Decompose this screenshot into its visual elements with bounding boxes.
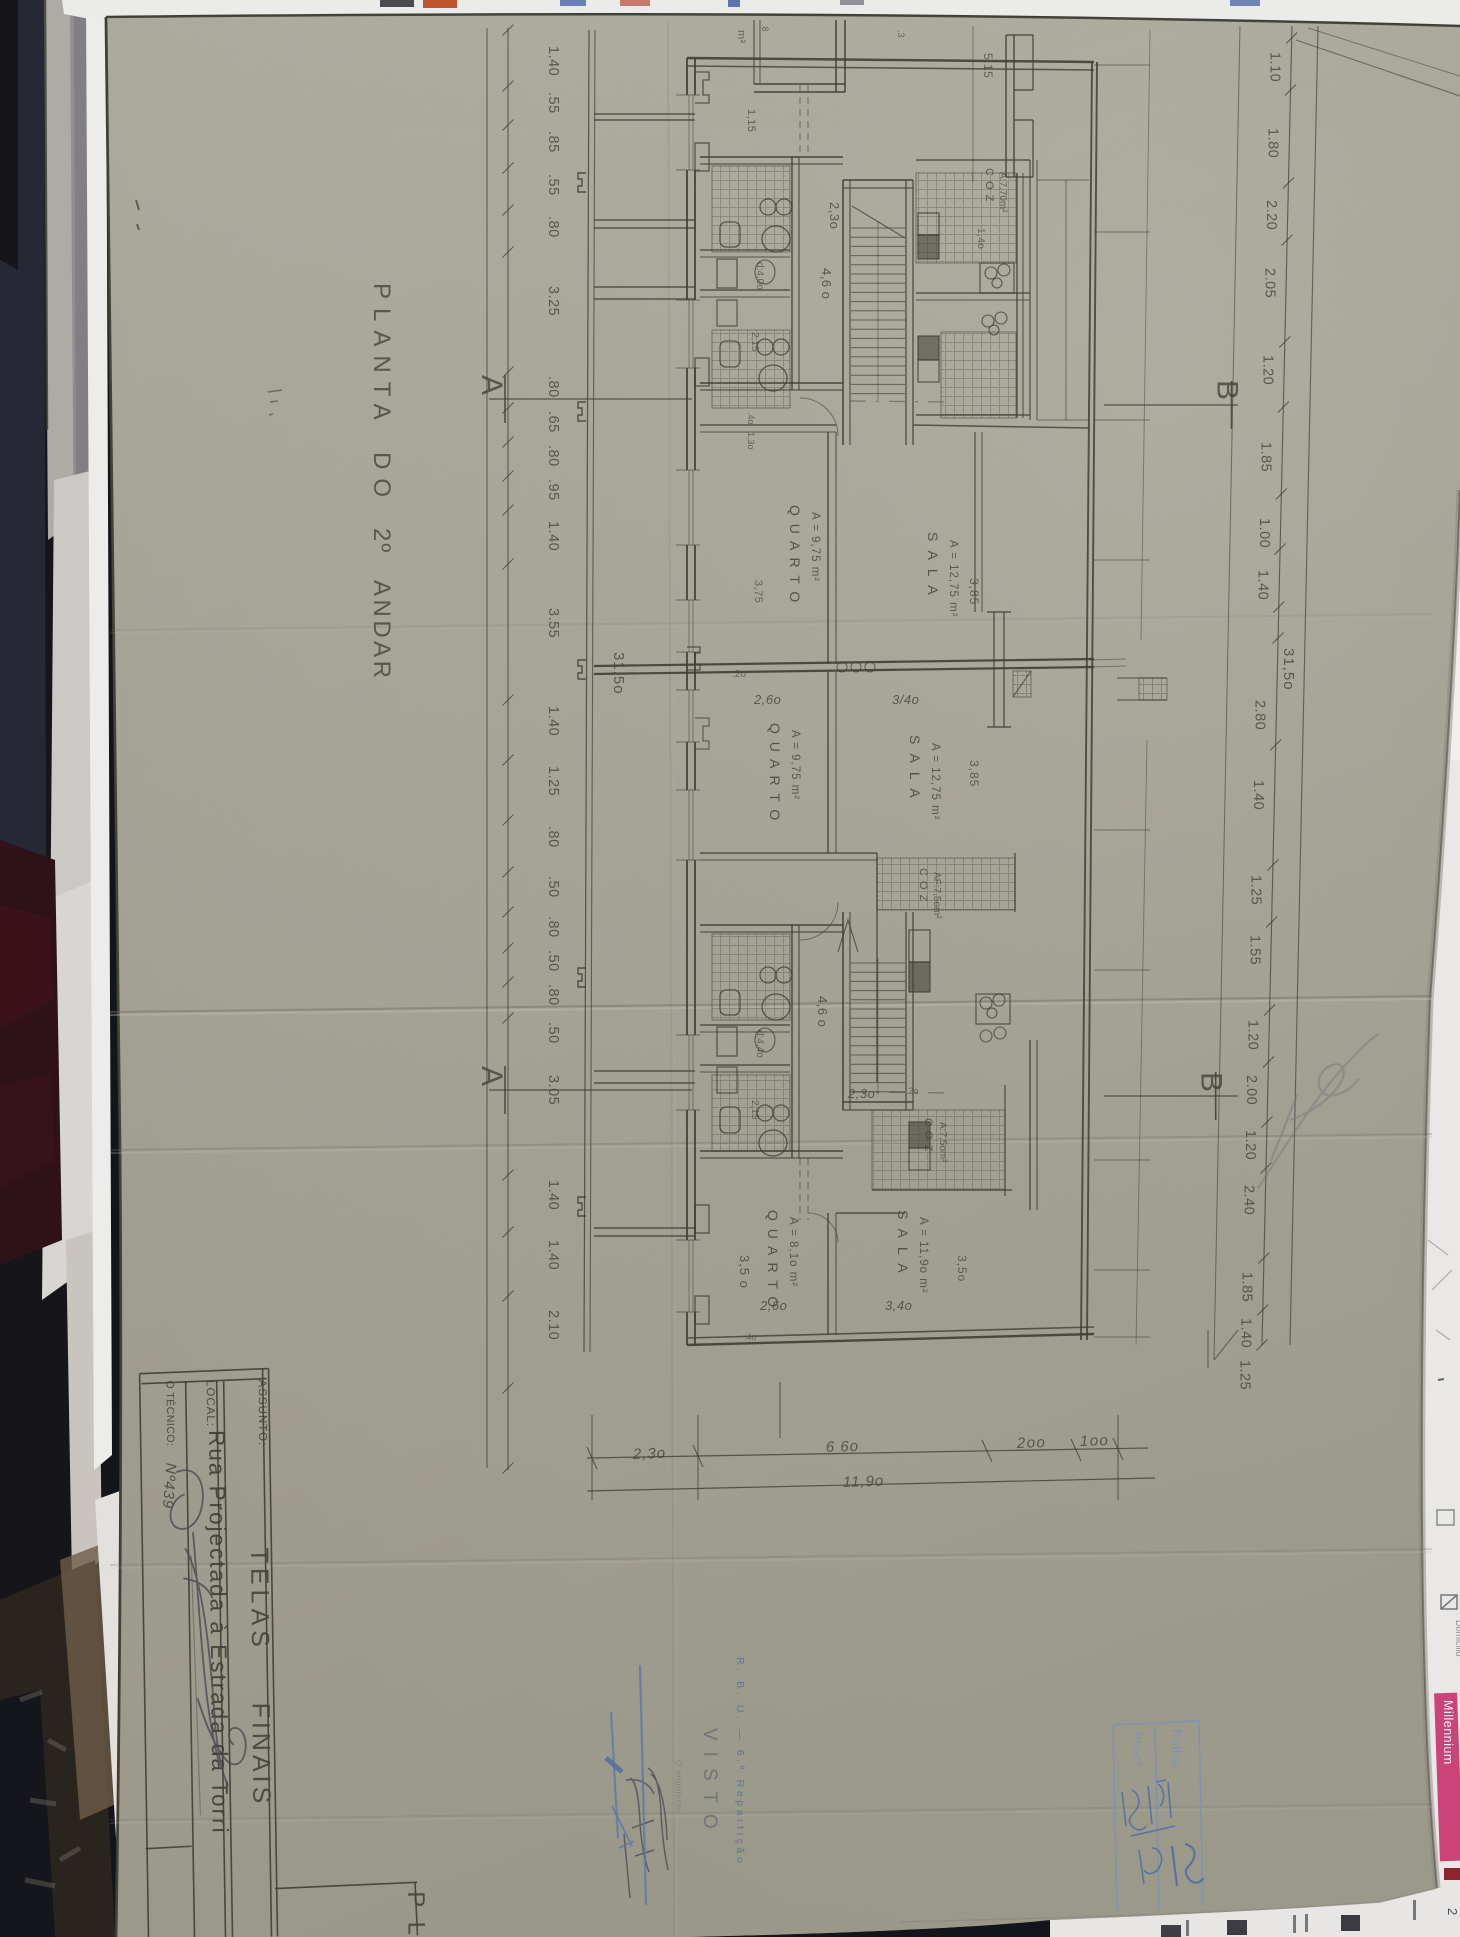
svg-text:A = 8,1o m²: A = 8,1o m²: [787, 1217, 799, 1287]
svg-text:3.05: 3.05: [545, 1075, 561, 1105]
svg-text:2.80: 2.80: [1252, 700, 1268, 730]
svg-text:5,15: 5,15: [981, 53, 995, 78]
svg-text:.65: .65: [545, 411, 561, 433]
svg-text:.55: .55: [545, 92, 561, 114]
svg-text:ASSUNTO:: ASSUNTO:: [256, 1380, 269, 1447]
svg-text:Procº: Procº: [1130, 1731, 1145, 1767]
svg-text:1.40: 1.40: [545, 46, 561, 76]
svg-text:3,5o: 3,5o: [955, 1255, 969, 1282]
svg-text:1.40: 1.40: [545, 1180, 561, 1210]
svg-text:2,15: 2,15: [749, 1100, 760, 1120]
svg-text:4,6 o: 4,6 o: [815, 996, 830, 1027]
svg-text:TELAS: TELAS: [245, 1548, 274, 1652]
svg-text:Domicilio: Domicilio: [1454, 1620, 1460, 1657]
svg-text:VISTO: VISTO: [699, 1728, 720, 1840]
svg-text:2.20: 2.20: [1263, 200, 1279, 230]
svg-text:Folha: Folha: [1169, 1729, 1184, 1767]
svg-text:.4o: .4o: [744, 1332, 757, 1342]
svg-text:6 6o: 6 6o: [826, 1438, 860, 1456]
svg-text:3,75: 3,75: [752, 580, 764, 603]
svg-text:.3: .3: [896, 30, 906, 38]
svg-text:3,85: 3,85: [967, 760, 981, 787]
svg-text:A = 12,75 m²: A = 12,75 m²: [947, 540, 959, 618]
svg-text:A: A: [475, 375, 508, 396]
svg-text:.80: .80: [545, 445, 561, 467]
svg-text:.8: .8: [760, 24, 770, 32]
svg-text:Q U A R T O: Q U A R T O: [767, 723, 783, 822]
svg-text:1.55: 1.55: [1246, 935, 1262, 965]
svg-text:A:7,70m²: A:7,70m²: [997, 172, 1008, 213]
svg-text:B: B: [1195, 1072, 1228, 1093]
svg-text:O arquitecto: O arquitecto: [674, 1760, 684, 1812]
svg-text:1.40: 1.40: [545, 521, 561, 551]
svg-text:1.40: 1.40: [545, 706, 561, 736]
svg-text:.55: .55: [545, 174, 561, 196]
svg-text:C O Z: C O Z: [983, 168, 995, 202]
svg-text:1.80: 1.80: [1265, 128, 1281, 158]
svg-text:3,5 o: 3,5 o: [737, 1255, 752, 1289]
svg-text:PLANTA: PLANTA: [368, 283, 395, 429]
svg-text:d:4,4o: d:4,4o: [754, 1030, 765, 1058]
svg-text:AF:7,5om²: AF:7,5om²: [931, 872, 942, 919]
svg-text:B: B: [1211, 380, 1244, 401]
svg-text:m²: m²: [735, 30, 747, 44]
svg-text:DO: DO: [368, 452, 395, 506]
svg-text:Rua Projectada à Estrada da To: Rua Projectada à Estrada da Torri: [204, 1430, 233, 1835]
svg-text:.80: .80: [545, 984, 561, 1006]
svg-text:2.10: 2.10: [545, 1310, 561, 1340]
svg-text:C O Z: C O Z: [917, 868, 929, 902]
svg-text:Q U A R T O: Q U A R T O: [765, 1210, 781, 1309]
svg-text:1.20: 1.20: [1242, 1130, 1258, 1160]
svg-text:.80: .80: [545, 916, 561, 938]
svg-text:2.00: 2.00: [1243, 1075, 1259, 1105]
svg-text:Q U A R T O: Q U A R T O: [787, 505, 803, 604]
svg-text:1.85: 1.85: [1239, 1272, 1255, 1302]
svg-text:3.55: 3.55: [545, 608, 561, 638]
svg-text:3,85: 3,85: [967, 578, 981, 605]
svg-text:2oo: 2oo: [1016, 1434, 1047, 1452]
svg-text:2,6o: 2,6o: [753, 692, 781, 707]
svg-text:2,15: 2,15: [749, 332, 760, 352]
svg-text:2.40: 2.40: [1241, 1185, 1257, 1215]
svg-text:1,15: 1,15: [745, 109, 757, 132]
svg-text:Nº439: Nº439: [159, 1462, 180, 1510]
svg-text:.80: .80: [545, 376, 561, 398]
svg-text:2,3o: 2,3o: [632, 1445, 667, 1463]
svg-text:2,3o: 2,3o: [827, 202, 842, 229]
svg-text:A:7,5om²: A:7,5om²: [937, 1122, 948, 1163]
svg-text:1.40: 1.40: [1255, 570, 1271, 600]
svg-text:1,4o: 1,4o: [975, 228, 986, 249]
svg-text:1.20: 1.20: [1260, 355, 1276, 385]
svg-text:A = 12,75 m²: A = 12,75 m²: [929, 743, 941, 821]
svg-text:.2o: .2o: [732, 669, 746, 680]
svg-text:1.25: 1.25: [1248, 875, 1264, 905]
svg-text:.85: .85: [545, 131, 561, 153]
svg-text:1.25: 1.25: [545, 766, 561, 796]
svg-text:11,9o: 11,9o: [843, 1473, 885, 1491]
svg-text:4,6 o: 4,6 o: [819, 268, 834, 299]
svg-text:LOCAL:: LOCAL:: [204, 1380, 216, 1427]
svg-text:1.25: 1.25: [1237, 1360, 1253, 1390]
svg-text:S A L A: S A L A: [907, 735, 923, 801]
svg-text:1.10: 1.10: [1266, 52, 1282, 82]
svg-text:A = 11,9o m²: A = 11,9o m²: [917, 1217, 929, 1294]
svg-text:3/4o: 3/4o: [892, 692, 919, 707]
svg-text:.80: .80: [545, 216, 561, 238]
svg-text:2º: 2º: [368, 528, 395, 554]
svg-text:2.05: 2.05: [1262, 268, 1278, 298]
svg-text:1.20: 1.20: [1244, 1020, 1260, 1050]
svg-text:A: A: [475, 1066, 508, 1087]
svg-text:Millennium: Millennium: [1441, 1700, 1455, 1765]
svg-text:C O Z: C O Z: [922, 1118, 934, 1152]
svg-text:3.25: 3.25: [545, 286, 561, 316]
svg-text:A = 9,75 m²: A = 9,75 m²: [809, 512, 821, 582]
svg-text:ANDAR: ANDAR: [368, 580, 395, 682]
svg-text:.50: .50: [545, 876, 561, 898]
svg-text:1.85: 1.85: [1258, 442, 1274, 472]
svg-text:.50: .50: [545, 950, 561, 972]
svg-text:2,6o: 2,6o: [759, 1298, 787, 1313]
svg-text:2: 2: [1445, 1908, 1460, 1916]
svg-text:3,4o: 3,4o: [885, 1298, 912, 1313]
svg-text:FINAIS: FINAIS: [246, 1703, 275, 1808]
svg-text:S A L A: S A L A: [925, 532, 941, 598]
svg-text:.2o: .2o: [906, 1086, 919, 1096]
svg-text:A = 9,75 m²: A = 9,75 m²: [789, 730, 801, 800]
svg-text:.95: .95: [545, 479, 561, 501]
svg-text:.80: .80: [545, 826, 561, 848]
svg-text:2,3o: 2,3o: [847, 1086, 875, 1101]
svg-text:O TÉCNICO:: O TÉCNICO:: [164, 1380, 178, 1446]
svg-text:.4o: .4o: [746, 412, 756, 425]
svg-text:1.40: 1.40: [1238, 1318, 1254, 1348]
svg-text:1.40: 1.40: [1250, 780, 1266, 810]
svg-text:P L: P L: [402, 1891, 429, 1937]
svg-text:1.00: 1.00: [1256, 518, 1272, 548]
svg-text:1oo: 1oo: [1080, 1432, 1110, 1450]
svg-text:d:4,0o: d:4,0o: [754, 262, 765, 290]
svg-text:R. B. U. — 6.ª Repartição: R. B. U. — 6.ª Repartição: [734, 1657, 746, 1866]
svg-text:31,5o: 31,5o: [1280, 648, 1297, 691]
svg-text:S A L A: S A L A: [895, 1210, 911, 1276]
svg-text:1.40: 1.40: [545, 1240, 561, 1270]
svg-text:.50: .50: [545, 1022, 561, 1044]
svg-text:1,3o: 1,3o: [746, 432, 756, 450]
